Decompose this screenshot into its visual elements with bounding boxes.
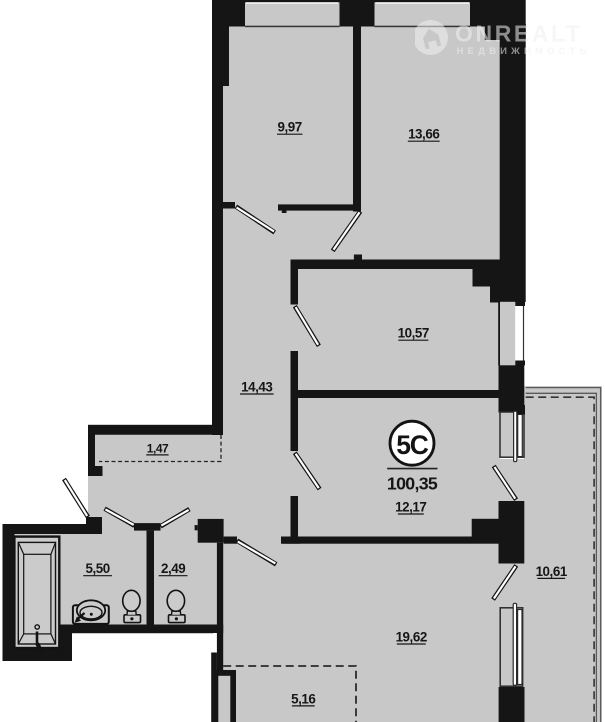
svg-text:10,57: 10,57	[398, 326, 429, 341]
svg-text:ONREALT: ONREALT	[455, 21, 583, 47]
svg-text:100,35: 100,35	[387, 473, 438, 493]
svg-text:5,16: 5,16	[291, 691, 315, 706]
svg-text:НЕДВИЖИМОСТЬ: НЕДВИЖИМОСТЬ	[457, 46, 591, 57]
svg-text:5C: 5C	[396, 430, 429, 460]
svg-text:2,49: 2,49	[161, 561, 185, 576]
svg-text:13,66: 13,66	[408, 127, 439, 142]
svg-text:1,47: 1,47	[147, 441, 169, 455]
svg-text:14,43: 14,43	[241, 379, 272, 394]
svg-text:9,97: 9,97	[277, 120, 301, 135]
svg-text:5,50: 5,50	[85, 561, 109, 576]
svg-text:12,17: 12,17	[395, 499, 426, 514]
svg-text:10,61: 10,61	[536, 564, 568, 579]
svg-text:19,62: 19,62	[396, 629, 427, 644]
